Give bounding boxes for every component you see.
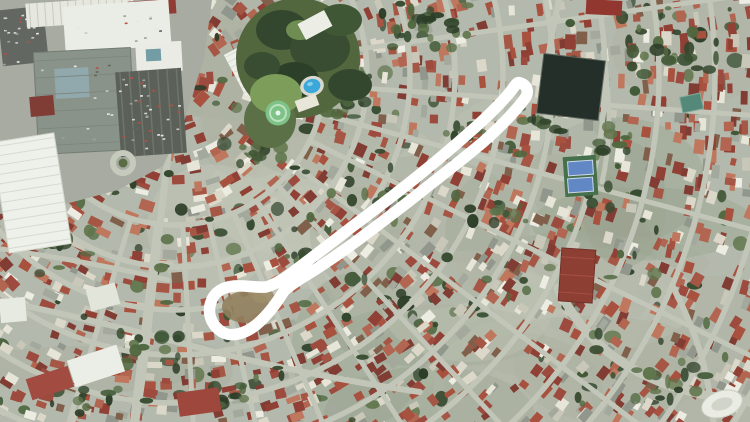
satellite-map-view[interactable]: [0, 0, 750, 422]
satellite-canvas: [0, 0, 750, 422]
